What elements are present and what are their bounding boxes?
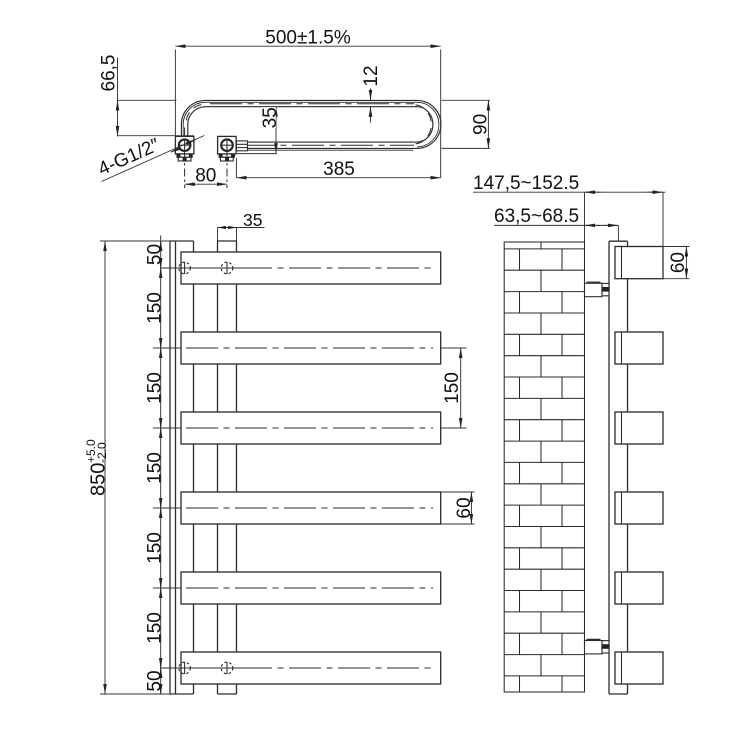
svg-text:-2.0: -2.0 (95, 442, 109, 463)
svg-text:147,5~152.5: 147,5~152.5 (473, 173, 579, 194)
svg-text:80: 80 (195, 165, 216, 186)
svg-text:150: 150 (144, 292, 165, 324)
svg-text:500±1.5%: 500±1.5% (265, 28, 351, 49)
svg-text:150: 150 (144, 612, 165, 644)
svg-text:150: 150 (144, 532, 165, 564)
svg-text:150: 150 (144, 372, 165, 404)
svg-text:150: 150 (442, 372, 463, 404)
svg-text:850: 850 (88, 463, 110, 496)
svg-text:50: 50 (144, 670, 165, 691)
svg-text:12: 12 (361, 65, 382, 86)
svg-text:50: 50 (144, 244, 165, 265)
svg-text:35: 35 (260, 107, 281, 128)
svg-text:385: 385 (323, 159, 355, 180)
svg-text:66,5: 66,5 (99, 55, 120, 92)
svg-text:35: 35 (243, 210, 262, 230)
svg-text:60: 60 (668, 252, 689, 273)
svg-text:90: 90 (471, 114, 492, 135)
svg-text:63,5~68.5: 63,5~68.5 (494, 206, 579, 227)
svg-text:60: 60 (454, 497, 475, 518)
svg-text:150: 150 (144, 452, 165, 484)
